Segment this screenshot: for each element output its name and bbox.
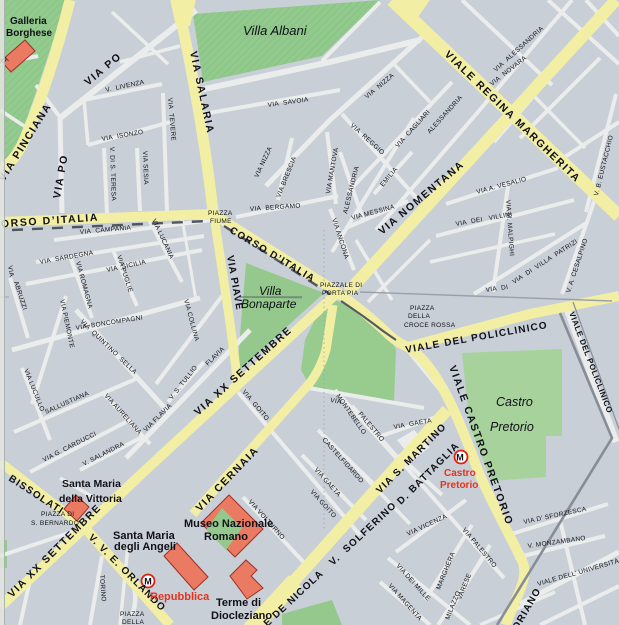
svg-text:Museo Nazionale: Museo Nazionale [184,518,273,530]
svg-text:PIAZZA: PIAZZA [208,210,233,217]
svg-text:VIA SESIA: VIA SESIA [141,151,149,185]
svg-text:Romano: Romano [204,531,248,543]
svg-text:Pretorio: Pretorio [490,420,534,434]
svg-text:PIAZZA: PIAZZA [120,611,145,618]
svg-text:CROCE ROSSA: CROCE ROSSA [404,322,456,329]
svg-text:Galleria: Galleria [10,16,47,27]
svg-text:degli Angeli: degli Angeli [114,541,176,553]
svg-text:DELLA: DELLA [408,313,430,320]
svg-text:DELLA: DELLA [122,619,144,625]
svg-text:Santa Maria: Santa Maria [62,478,121,490]
svg-text:Pretorio: Pretorio [440,480,478,491]
svg-text:PORTA PIA: PORTA PIA [322,290,359,297]
svg-text:Villa: Villa [259,284,282,298]
svg-text:PIAZZALE DI: PIAZZALE DI [320,282,362,289]
svg-text:Castro: Castro [444,468,476,479]
svg-text:Terme di: Terme di [216,597,261,609]
svg-text:PIAZZA DI: PIAZZA DI [41,511,74,518]
svg-text:della Vittoria: della Vittoria [59,493,122,505]
svg-text:PIAZZA: PIAZZA [410,305,435,312]
svg-text:Castro: Castro [496,395,533,409]
svg-text:Borghese: Borghese [6,28,53,39]
svg-text:Villa Albani: Villa Albani [243,23,308,38]
svg-text:M: M [456,453,464,463]
svg-text:FIUME: FIUME [210,218,232,225]
svg-text:Repubblica: Repubblica [150,591,210,603]
svg-text:S. BERNARDO: S. BERNARDO [31,520,79,527]
svg-text:Diocleziano: Diocleziano [211,610,272,622]
svg-text:Bonaparte: Bonaparte [241,297,297,311]
